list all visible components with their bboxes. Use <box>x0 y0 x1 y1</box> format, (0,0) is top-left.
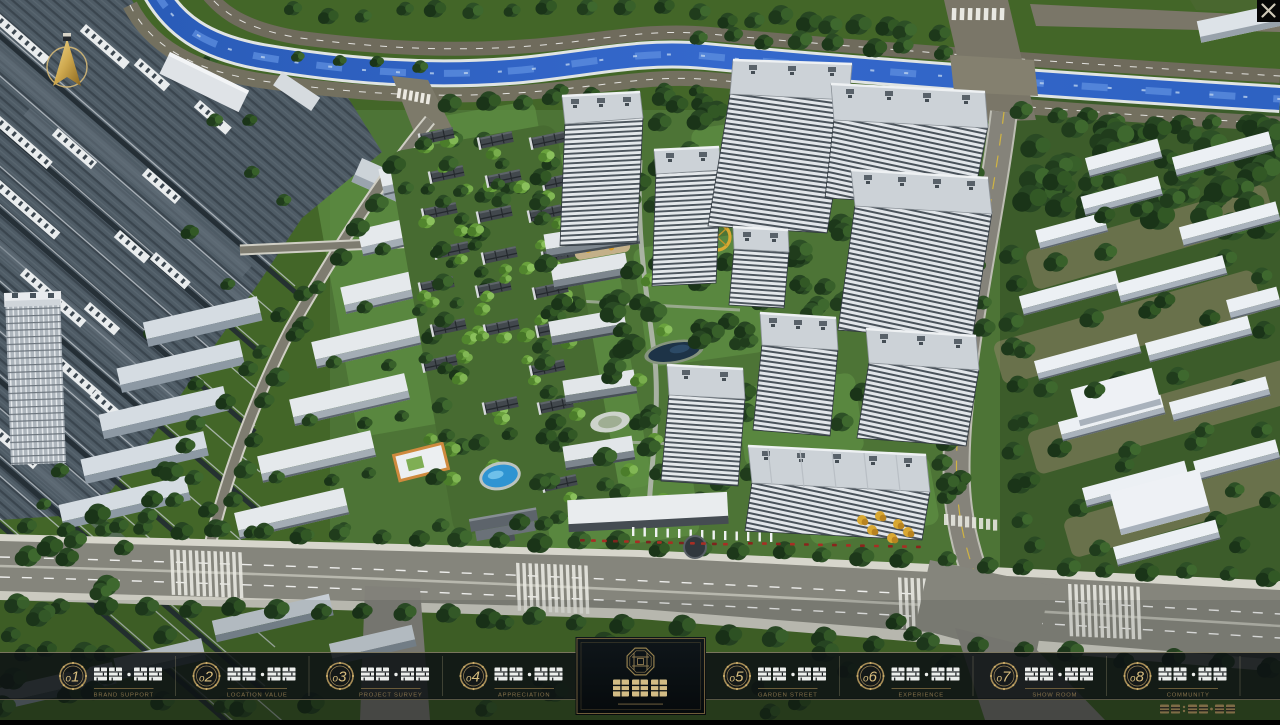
svg-text:BRAND SUPPORT: BRAND SUPPORT <box>94 693 154 699</box>
svg-text:APPRECIATION: APPRECIATION <box>498 693 550 699</box>
svg-text:LOCATION VALUE: LOCATION VALUE <box>227 693 288 699</box>
svg-text:PROJECT SURVEY: PROJECT SURVEY <box>359 693 423 699</box>
svg-text:SHOW ROOM: SHOW ROOM <box>1032 693 1077 699</box>
svg-text:GARDEN STREET: GARDEN STREET <box>758 693 818 699</box>
svg-text:COMMUNITY: COMMUNITY <box>1167 693 1210 699</box>
svg-text:EXPERIENCE: EXPERIENCE <box>899 693 944 699</box>
